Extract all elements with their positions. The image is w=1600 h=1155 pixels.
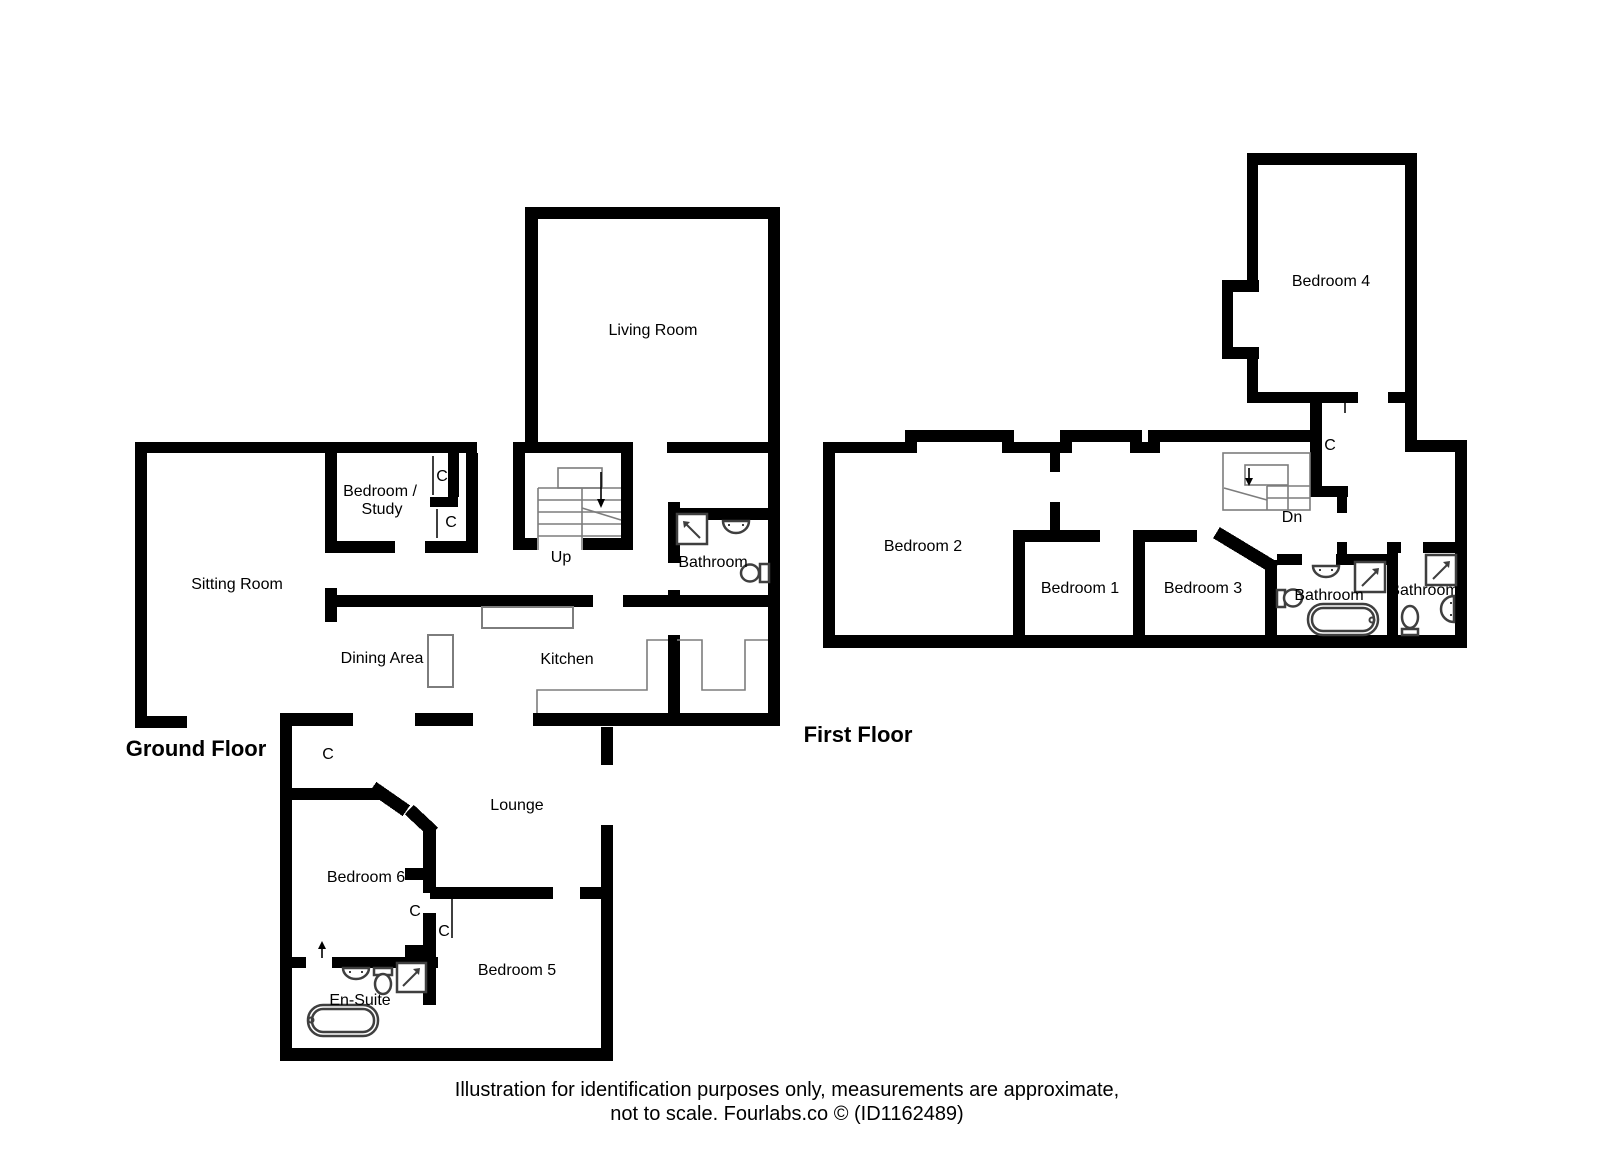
bedroom-4-label: Bedroom 4 [1292,273,1370,290]
closet-label: C [438,923,450,940]
bathtub-icon [1308,604,1378,635]
sideboard-icon [482,607,573,628]
stairs-up-label: Up [551,549,572,566]
en-suite-label: En-Suite [329,992,390,1009]
lounge-label: Lounge [490,797,543,814]
staircase-down-icon [1223,453,1310,510]
bathroom-label: Bathroom [1294,587,1363,604]
ground-bathroom-fixtures [677,514,769,582]
sink-icon [343,968,369,979]
stairs-down-label: Dn [1282,509,1302,526]
staircase-up-icon [538,468,621,550]
footer-line-2: not to scale. Fourlabs.co © (ID1162489) [610,1103,963,1125]
closet-label: C [436,468,448,485]
first-floor-title: First Floor [804,722,913,747]
bathtub-icon [308,1005,378,1036]
bedroom-1-label: Bedroom 1 [1041,580,1119,597]
closet-label: C [409,903,421,920]
first-floor-plan: Bedroom 4 C Dn Bedroom 2 Bedroom 1 Bedro… [804,153,1467,747]
sink-icon [1441,596,1454,622]
shower-icon [677,514,707,544]
first-floor-angled-walls [1222,536,1270,565]
floorplan-drawing: Living Room Bedroom / Study C C Sitting … [0,0,1600,1155]
closet-label: C [1324,437,1336,454]
sink-icon [723,521,749,533]
shower-icon [397,963,426,992]
ground-floor-angled-walls [378,791,429,828]
ground-floor-title: Ground Floor [126,736,267,761]
toilet-icon [374,968,392,994]
bedroom-6-label: Bedroom 6 [327,869,405,886]
door-arrow-icon [318,941,326,958]
closet-label: C [445,514,457,531]
floorplan-page: Living Room Bedroom / Study C C Sitting … [0,0,1600,1155]
bedroom-5-label: Bedroom 5 [478,962,556,979]
dining-table-icon [428,635,453,687]
sitting-room-label: Sitting Room [191,576,283,593]
shower-icon [1426,555,1456,585]
ground-floor-plan: Living Room Bedroom / Study C C Sitting … [126,207,780,1061]
living-room-label: Living Room [609,322,698,339]
kitchen-label: Kitchen [540,651,593,668]
bedroom-3-label: Bedroom 3 [1164,580,1242,597]
footer-line-1: Illustration for identification purposes… [455,1079,1119,1101]
bathroom-label: Bathroom [678,554,747,571]
bedroom-study-label-line2: Study [362,501,403,518]
closet-label: C [322,746,334,763]
bathroom-label: Bathroom [1389,582,1458,599]
bedroom-2-label: Bedroom 2 [884,538,962,555]
dining-area-label: Dining Area [341,650,424,667]
footer-disclaimer: Illustration for identification purposes… [455,1079,1119,1125]
toilet-icon [1402,606,1418,635]
bedroom-study-label-line1: Bedroom / [343,483,417,500]
sink-icon [1313,566,1339,577]
